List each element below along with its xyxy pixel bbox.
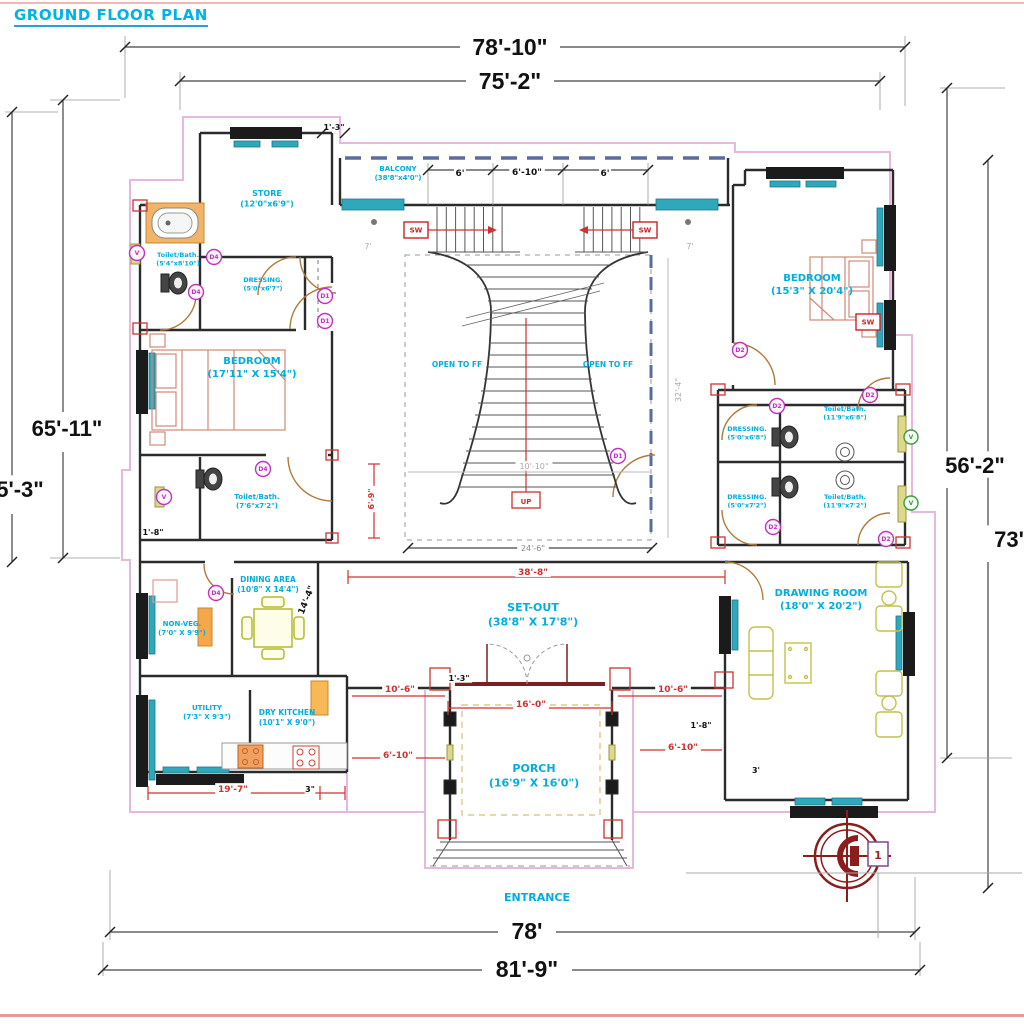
room-dims-label: (16'9" X 16'0")	[489, 776, 579, 789]
room-dims-label: (11'9"x7'2")	[823, 501, 867, 509]
room-label: NON-VEG.	[163, 620, 202, 628]
room-dims-label: (5'0"x7'2")	[728, 501, 767, 509]
dim-label: 10'-10"	[519, 462, 548, 471]
dim-label: 6'-10"	[383, 751, 413, 761]
dim-label: 6'	[455, 169, 464, 179]
dim-label: 1'-8"	[690, 721, 711, 730]
room-label: Toilet/Bath.	[234, 493, 279, 501]
room-label: DINING AREA	[240, 575, 296, 584]
wash-basins	[836, 443, 854, 489]
floor-plan-page: GROUND FLOOR PLAN	[0, 0, 1024, 1024]
dim-label: 10'-6"	[658, 685, 688, 695]
entrance-door	[455, 644, 605, 684]
door-tag-label: D2	[768, 524, 777, 531]
room-label: PORCH	[512, 762, 555, 775]
door-tag-label: V	[135, 250, 140, 257]
vent-tag-label: V	[909, 500, 914, 507]
room-dims-label: (7'0" X 9'9")	[158, 629, 206, 637]
dim-label: 1'-3"	[323, 123, 344, 132]
dim-label: 32'-4"	[674, 378, 683, 402]
dim-label: 7'	[364, 242, 371, 251]
door-tag-label: D4	[258, 466, 267, 473]
dining-set	[242, 597, 304, 659]
room-label: Toilet/Bath.	[824, 493, 866, 501]
room-dims-label: (7'6"x7'2")	[236, 502, 278, 510]
door-tag-label: D2	[735, 347, 744, 354]
door-tag-label: D1	[320, 318, 329, 325]
room-label: OPEN TO FF	[432, 360, 482, 369]
door-tag-label: D4	[209, 254, 218, 261]
dim-label: 1'-3"	[448, 674, 469, 683]
dim-label: 56'-2"	[945, 453, 1005, 478]
dim-label: 6'	[600, 169, 609, 179]
dim-label: 6'-9"	[367, 488, 376, 509]
room-dims-label: (5'0"x6'7")	[244, 284, 283, 292]
door-tag-label: D1	[320, 293, 329, 300]
room-label: DRY KITCHEN	[259, 708, 316, 717]
bed-left	[150, 334, 285, 445]
dim-label: UP	[521, 498, 532, 506]
room-dims-label: (38'8"x4'0")	[375, 174, 422, 182]
dim-label: 75'-2"	[479, 68, 541, 94]
room-label: DRESSING.	[243, 276, 283, 284]
room-dims-label: (10'1" X 9'0")	[259, 718, 315, 727]
room-label: BEDROOM	[783, 273, 840, 284]
room-label: DRESSING.	[727, 425, 767, 433]
room-dims-label: (12'0"x6'9")	[240, 199, 294, 208]
room-dims-label: (11'9"x6'8")	[823, 413, 867, 421]
door-tag-label: D4	[191, 289, 200, 296]
dim-label: 81'-9"	[496, 956, 558, 982]
dim-label: 16'-0"	[516, 700, 546, 710]
room-dims-label: (7'3" X 9'3")	[183, 713, 231, 721]
window-tag-label: SW	[862, 319, 875, 327]
door-tag-label: D2	[881, 536, 890, 543]
door-tag-label: V	[162, 494, 167, 501]
vent-tag-label: V	[909, 434, 914, 441]
dim-label: 73'	[994, 527, 1024, 552]
room-label: DRESSING.	[727, 493, 767, 501]
dim-label: 14'-4"	[297, 584, 317, 616]
door-tag-label: D2	[772, 403, 781, 410]
dim-label: 19'-7"	[218, 785, 248, 795]
room-label: STORE	[252, 189, 282, 198]
dim-label: 1'-8"	[142, 528, 163, 537]
dim-label: 6'-10"	[668, 743, 698, 753]
dim-label: 10'-6"	[385, 685, 415, 695]
room-label: UTILITY	[192, 704, 223, 712]
room-label: DRAWING ROOM	[775, 588, 868, 599]
dashed-guides	[318, 158, 728, 866]
bathtub	[146, 203, 204, 243]
dim-label: 3'	[752, 766, 760, 775]
dim-label: 3"	[305, 785, 315, 794]
dim-label: 1	[874, 849, 882, 862]
site-reference-lines	[686, 873, 1022, 938]
window-tag-label: SW	[410, 227, 423, 235]
dim-label: 78'-10"	[472, 34, 547, 60]
room-dims-label: (18'0" X 20'2")	[780, 601, 862, 612]
floor-plan-canvas: STORE(12'0"x6'9")BALCONY(38'8"x4'0")BEDR…	[0, 0, 1024, 1024]
room-label: BALCONY	[379, 165, 417, 173]
dim-label: 24'-6"	[521, 544, 545, 553]
room-label: OPEN TO FF	[583, 360, 633, 369]
room-dims-label: (10'8" X 14'4")	[237, 585, 299, 594]
dim-label: 5'-3"	[0, 477, 44, 502]
door-tag-label: D2	[865, 392, 874, 399]
room-dims-label: (17'11" X 15'4")	[207, 369, 296, 380]
dim-label: 6'-10"	[512, 168, 542, 178]
room-label: SET-OUT	[507, 601, 559, 614]
room-label: ENTRANCE	[504, 891, 570, 904]
room-label: BEDROOM	[223, 356, 280, 367]
door-tag-label: D1	[613, 453, 622, 460]
dim-label: 78'	[511, 918, 542, 944]
door-tag-label: D4	[211, 590, 220, 597]
room-label: Toilet/Bath.	[824, 405, 866, 413]
window-tag-label: SW	[639, 227, 652, 235]
room-dims-label: (5'0"x6'8")	[728, 433, 767, 441]
room-dims-label: (5'4"x8'10")	[156, 259, 200, 267]
dim-label: 38'-8"	[518, 568, 548, 578]
room-dims-label: (38'8" X 17'8")	[488, 615, 578, 628]
dim-label: 7'	[686, 242, 693, 251]
dim-label: 65'-11"	[32, 416, 103, 441]
room-dims-label: (15'3" X 20'4")	[771, 286, 853, 297]
room-label: Toilet/Bath.	[157, 251, 199, 259]
